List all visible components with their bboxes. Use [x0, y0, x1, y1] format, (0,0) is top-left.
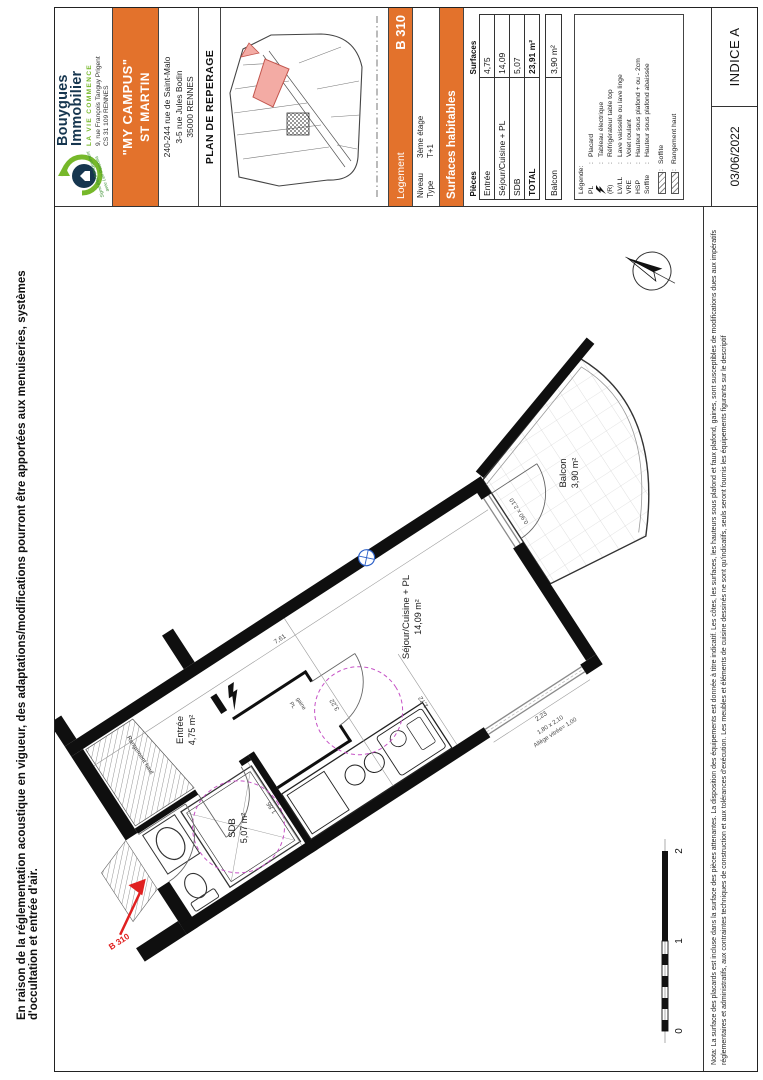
- rotated-sheet: En raison de la réglementation acoustiqu…: [0, 0, 763, 1080]
- table-row: SDB 5,07: [510, 15, 525, 200]
- scale-ticks: 0 1 2: [674, 848, 685, 1034]
- washbasin: [150, 822, 190, 865]
- row-label: Séjour/Cuisine + PL: [495, 78, 510, 200]
- project-banner: "MY CAMPUS" ST MARTIN: [113, 8, 159, 206]
- row-value: 5,07: [510, 15, 525, 78]
- legend-row: VRE : Volet roulant: [625, 20, 634, 194]
- row-value: 14,09: [495, 15, 510, 78]
- surfaces-table-section: Pièces Surfaces Entrée 4,75 Séjour/Cuisi…: [464, 8, 566, 206]
- legend-desc: Volet roulant: [625, 20, 634, 157]
- legend-swatch-row: : Soffite: [658, 20, 666, 194]
- total-value: 23,91 m²: [525, 15, 540, 78]
- logo-section: Signé électroniquement avec Lex Persona …: [55, 8, 113, 206]
- table-row: Séjour/Cuisine + PL 14,09: [495, 15, 510, 200]
- revision-row: 03/06/2022 INDICE A: [711, 8, 757, 206]
- corridor-wall: [136, 921, 187, 962]
- revision-indice: INDICE A: [712, 8, 757, 106]
- floor-plan-area: Rangement haut PL gaine: [55, 207, 703, 1071]
- table-row: Entrée 4,75: [480, 15, 495, 200]
- scale-tick-1: 1: [674, 938, 685, 944]
- closet-label-2: gaine: [294, 697, 306, 712]
- acoustic-note: En raison de la réglementation acoustiqu…: [16, 210, 40, 1020]
- legend-desc: Hauteur sous plafond + ou - 2cm: [634, 20, 643, 157]
- lightning-icon: [221, 682, 247, 710]
- key-plan: [221, 8, 389, 206]
- table-row-total: TOTAL 23,91 m²: [525, 15, 540, 200]
- logement-banner: Logement B 310: [389, 8, 413, 206]
- type-label: Type: [426, 158, 436, 198]
- sheet-frame: Rangement haut PL gaine: [54, 7, 758, 1072]
- balcon-label: Balcon: [546, 78, 561, 199]
- legend-abbr: LV/LL: [616, 164, 625, 194]
- project-address-3: 35000 RENNES: [185, 8, 197, 206]
- row-label: SDB: [510, 78, 525, 200]
- bay-window-glass: [485, 667, 581, 730]
- logement-unit: B 310: [393, 15, 408, 50]
- plan-title: PLAN DE REPERAGE: [199, 8, 221, 206]
- lightning-icon: [596, 185, 606, 194]
- legend-row: HSP : Hauteur sous plafond + ou - 2cm: [634, 20, 643, 194]
- legend-desc: Soffite: [658, 20, 665, 164]
- project-subname: ST MARTIN: [138, 8, 152, 206]
- balcon-value: 3,90 m²: [546, 15, 561, 78]
- electric-panel: [210, 693, 227, 714]
- brand-name-2: Immobilier: [70, 56, 84, 146]
- dim-1-72: 1,72: [417, 694, 430, 709]
- floor-plan-svg: Rangement haut PL gaine: [55, 207, 703, 1071]
- room-label-sejour: Séjour/Cuisine + PL: [401, 575, 412, 659]
- legend-swatch-row: : Rangement haut: [671, 20, 679, 194]
- row-value: 4,75: [480, 15, 495, 78]
- legend-row: (R) : Réfrigérateur table top: [606, 20, 615, 194]
- surfaces-table: Pièces Surfaces Entrée 4,75 Séjour/Cuisi…: [468, 14, 540, 200]
- project-address-2: 3-5 rue Jules Bodin: [174, 8, 186, 206]
- col-surfaces: Surfaces: [468, 15, 480, 78]
- hatch-swatch: [658, 172, 666, 194]
- legend-sep: :: [658, 164, 665, 171]
- type-value: T+1: [426, 144, 436, 158]
- dim-7-61: 7,61: [273, 633, 288, 646]
- legend-sep: :: [625, 157, 634, 164]
- legend-row: LV/LL : Lave vaisselle ou lave linge: [616, 20, 625, 194]
- col-pieces: Pièces: [468, 78, 480, 200]
- room-label-entree: Entrée: [175, 716, 186, 744]
- logement-label: Logement: [395, 152, 407, 199]
- accessibility-circle: [298, 650, 420, 772]
- legend-abbr: Soffite: [643, 164, 652, 194]
- revision-date: 03/06/2022: [712, 106, 757, 206]
- legend-desc: Hauteur sous plafond abaissée: [643, 20, 652, 157]
- dim-1-86: 1,86: [265, 800, 278, 815]
- balcon-row: Balcon 3,90 m²: [545, 14, 562, 200]
- legend-sep: :: [643, 157, 652, 164]
- north-arrow-icon: [617, 240, 684, 300]
- scale-tick-0: 0: [674, 1028, 685, 1034]
- legend-sep: :: [606, 157, 615, 164]
- brand-address-1: 9, rue François Tanguy Prigent: [95, 56, 103, 146]
- niveau-value: 3ème étage: [416, 116, 426, 158]
- legend-box: Légende: PL : Placard : Tableau él: [574, 14, 684, 200]
- legend-abbr: (R): [606, 164, 615, 194]
- legend-abbr: PL: [587, 164, 596, 194]
- brand-name-1: Bouygues: [56, 56, 70, 146]
- project-name: "MY CAMPUS": [120, 8, 135, 206]
- legend-sep: :: [597, 157, 606, 164]
- legend-sep: :: [634, 157, 643, 164]
- hatch-swatch: [671, 172, 679, 194]
- legend-abbr: VRE: [625, 164, 634, 194]
- dimension-lines: [83, 493, 596, 932]
- closet-walls: [233, 671, 352, 789]
- project-address-1: 240-244 rue de Saint-Malo: [162, 8, 174, 206]
- stair-core: [287, 114, 309, 136]
- legend-row: Soffite : Hauteur sous plafond abaissée: [643, 20, 652, 194]
- toilet: [180, 869, 211, 902]
- legend-sep: :: [671, 164, 678, 171]
- scale-tick-2: 2: [674, 848, 685, 854]
- legend-desc: Placard: [587, 20, 596, 157]
- legend-desc: Tableau électrique: [597, 20, 606, 157]
- project-address: 240-244 rue de Saint-Malo 3-5 rue Jules …: [159, 8, 199, 206]
- legend-sep: :: [587, 157, 596, 164]
- room-area-entree: 4,75 m²: [187, 715, 197, 746]
- legend-row: : Tableau électrique: [596, 20, 606, 194]
- legend-title: Légende:: [578, 20, 585, 194]
- niveau-label: Niveau: [416, 158, 426, 198]
- surfaces-banner: Surfaces habitables: [440, 8, 464, 206]
- niveau-type: Niveau 3ème étage Type T+1: [413, 8, 440, 206]
- dim-2-23: 2,23: [534, 710, 549, 723]
- legend-desc: Lave vaisselle ou lave linge: [616, 20, 625, 157]
- room-area-balcon: 3,90 m²: [570, 458, 580, 489]
- nota-line-1: Nota: La surface des placards est inclus…: [710, 213, 720, 1065]
- title-block: Signé électroniquement avec Lex Persona …: [55, 8, 757, 207]
- nota-line-2: réglementaires et administratifs, aux co…: [720, 213, 730, 1065]
- spacer: [684, 8, 711, 206]
- plan-sheet-page: En raison de la réglementation acoustiqu…: [0, 0, 763, 1080]
- room-label-balcon: Balcon: [558, 458, 569, 487]
- apartment-unit: Rangement haut PL gaine: [55, 341, 703, 1003]
- total-label: TOTAL: [525, 78, 540, 200]
- row-label: Entrée: [480, 78, 495, 200]
- brand-address-2: CS 31 109 RENNES: [103, 56, 111, 146]
- legend-row: PL : Placard: [587, 20, 596, 194]
- room-label-sdb: SDB: [227, 818, 238, 838]
- legend-abbr: HSP: [634, 164, 643, 194]
- legend-desc: Réfrigérateur table top: [606, 20, 615, 157]
- brand-tagline: LA VIE COMMENCE: [86, 56, 93, 146]
- nota-note: Nota: La surface des placards est inclus…: [703, 207, 756, 1071]
- closet-label-1: PL: [288, 701, 297, 710]
- key-plan-svg: [225, 9, 385, 206]
- scale-bar: 0 1 2: [662, 839, 685, 1043]
- neighbour-wall-stub: [162, 629, 195, 670]
- room-area-sejour: 14,09 m²: [413, 599, 423, 635]
- room-area-sdb: 5,07 m²: [239, 813, 249, 844]
- legend-sep: :: [616, 157, 625, 164]
- dim-3-22: 3,22: [328, 697, 341, 712]
- legend-desc: Rangement haut: [671, 20, 678, 164]
- bouygues-logo: Signé électroniquement avec Lex Persona: [58, 151, 110, 201]
